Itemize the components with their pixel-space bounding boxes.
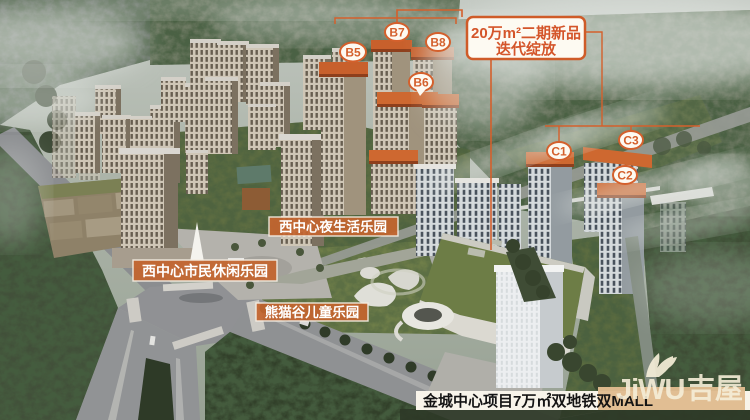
svg-text:吉屋: 吉屋 — [687, 373, 743, 404]
svg-text:B6: B6 — [413, 76, 429, 90]
svg-text:西中心市民休闲乐园: 西中心市民休闲乐园 — [142, 263, 268, 279]
svg-text:迭代绽放: 迭代绽放 — [496, 40, 557, 58]
svg-text:C1: C1 — [551, 145, 567, 159]
svg-text:20万m²二期新品: 20万m²二期新品 — [471, 24, 581, 42]
svg-text:C2: C2 — [617, 169, 633, 183]
svg-text:西中心夜生活乐园: 西中心夜生活乐园 — [279, 219, 387, 235]
svg-text:B8: B8 — [430, 36, 446, 50]
svg-text:JiWU: JiWU — [616, 374, 685, 406]
svg-text:C3: C3 — [623, 134, 639, 148]
svg-text:B5: B5 — [345, 46, 361, 60]
svg-text:熊猫谷儿童乐园: 熊猫谷儿童乐园 — [265, 304, 360, 320]
svg-text:B7: B7 — [389, 26, 405, 40]
